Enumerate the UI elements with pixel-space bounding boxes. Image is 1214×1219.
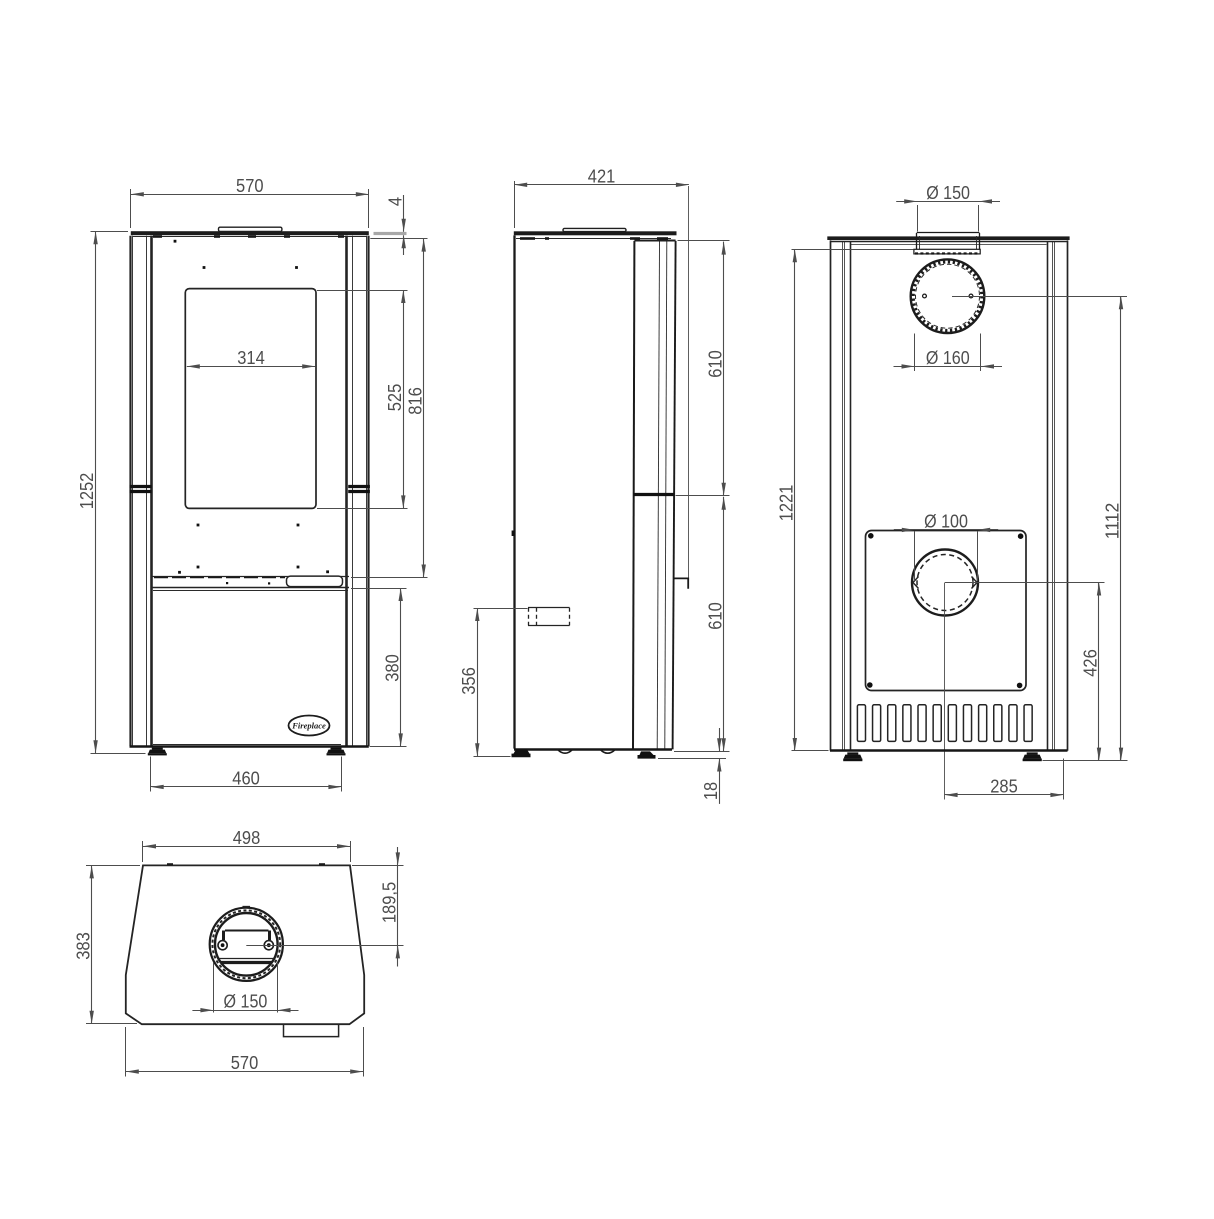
- svg-text:498: 498: [233, 827, 261, 848]
- svg-text:610: 610: [704, 350, 725, 378]
- svg-text:189,5: 189,5: [379, 882, 400, 923]
- svg-text:421: 421: [588, 165, 616, 186]
- svg-text:Ø 160: Ø 160: [926, 347, 970, 368]
- svg-text:383: 383: [72, 932, 93, 960]
- svg-text:18: 18: [700, 782, 721, 800]
- svg-text:Ø 150: Ø 150: [224, 991, 268, 1012]
- svg-text:525: 525: [384, 384, 405, 412]
- svg-text:610: 610: [704, 602, 725, 630]
- svg-text:Ø 100: Ø 100: [924, 510, 968, 531]
- svg-text:570: 570: [231, 1052, 259, 1073]
- svg-text:1112: 1112: [1102, 503, 1123, 540]
- svg-text:380: 380: [381, 654, 402, 682]
- svg-text:285: 285: [990, 775, 1018, 796]
- svg-text:1221: 1221: [775, 485, 796, 522]
- svg-text:426: 426: [1080, 649, 1101, 677]
- svg-text:460: 460: [232, 767, 260, 788]
- svg-text:570: 570: [236, 175, 264, 196]
- svg-text:816: 816: [404, 387, 425, 415]
- svg-text:314: 314: [237, 347, 265, 368]
- svg-text:Ø 150: Ø 150: [926, 182, 970, 203]
- svg-text:Fireplace: Fireplace: [291, 721, 326, 731]
- svg-text:4: 4: [385, 197, 406, 206]
- svg-text:356: 356: [458, 667, 479, 695]
- svg-text:1252: 1252: [76, 473, 97, 510]
